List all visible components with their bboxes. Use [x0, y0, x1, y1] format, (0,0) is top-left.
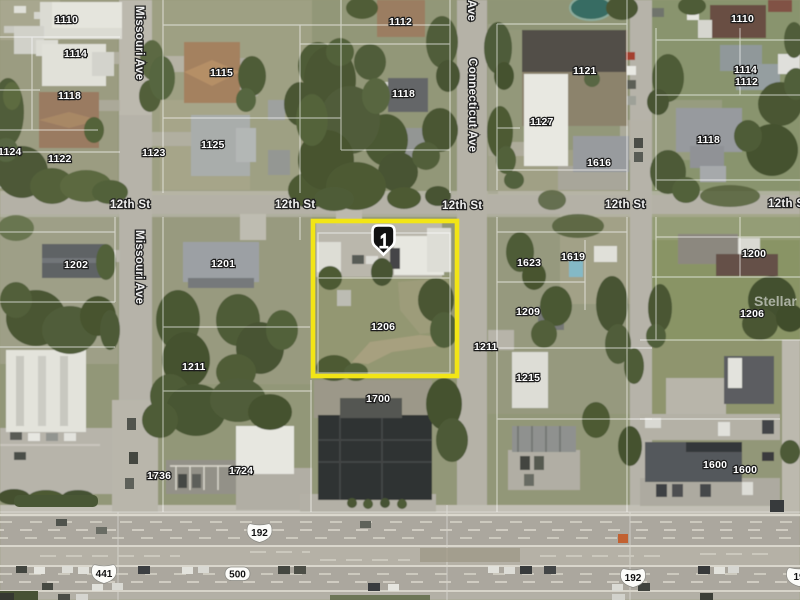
- svg-text:19: 19: [793, 572, 800, 583]
- svg-text:12th St: 12th St: [275, 199, 315, 211]
- svg-text:Connecticut Ave: Connecticut Ave: [466, 58, 478, 152]
- svg-text:1211: 1211: [474, 341, 498, 353]
- svg-text:1211: 1211: [182, 361, 206, 373]
- svg-text:1115: 1115: [210, 67, 233, 79]
- svg-text:1125: 1125: [201, 139, 225, 151]
- svg-text:Connecticut Ave: Connecticut Ave: [465, 0, 477, 21]
- svg-text:1112: 1112: [389, 16, 412, 28]
- svg-text:1110: 1110: [55, 14, 78, 26]
- svg-text:1619: 1619: [561, 251, 585, 263]
- svg-text:Missouri Ave: Missouri Ave: [133, 230, 145, 304]
- svg-text:1600: 1600: [733, 464, 757, 476]
- svg-text:1123: 1123: [142, 147, 166, 159]
- svg-text:12th St: 12th St: [110, 199, 150, 211]
- svg-text:192: 192: [251, 528, 268, 539]
- svg-text:1700: 1700: [366, 393, 390, 405]
- svg-text:1114: 1114: [64, 48, 87, 60]
- svg-text:Missouri Ave: Missouri Ave: [133, 6, 145, 80]
- svg-text:1124: 1124: [0, 146, 22, 158]
- svg-text:1616: 1616: [587, 157, 611, 169]
- svg-text:12th St: 12th St: [768, 198, 800, 210]
- svg-text:1623: 1623: [517, 257, 541, 269]
- svg-text:1118: 1118: [58, 90, 81, 102]
- svg-text:Stellar M: Stellar M: [754, 293, 800, 309]
- svg-text:1202: 1202: [64, 259, 88, 271]
- svg-text:1127: 1127: [530, 116, 554, 128]
- svg-text:1600: 1600: [703, 459, 727, 471]
- svg-text:1201: 1201: [211, 258, 235, 270]
- svg-text:1724: 1724: [229, 465, 253, 477]
- svg-text:1118: 1118: [392, 88, 415, 100]
- svg-text:12th St: 12th St: [442, 200, 482, 212]
- svg-text:1110: 1110: [731, 13, 754, 25]
- svg-text:1736: 1736: [147, 470, 171, 482]
- svg-text:1206: 1206: [371, 321, 395, 333]
- svg-text:192: 192: [625, 573, 642, 584]
- svg-text:1112: 1112: [735, 76, 758, 88]
- svg-text:1209: 1209: [516, 306, 540, 318]
- svg-text:1206: 1206: [740, 308, 764, 320]
- svg-text:1121: 1121: [573, 65, 597, 77]
- svg-text:1118: 1118: [697, 134, 720, 146]
- svg-text:12th St: 12th St: [605, 199, 645, 211]
- svg-text:441: 441: [96, 569, 113, 580]
- svg-text:1215: 1215: [516, 372, 540, 384]
- svg-text:500: 500: [229, 570, 246, 581]
- svg-text:1122: 1122: [48, 153, 72, 165]
- svg-text:1200: 1200: [742, 248, 766, 260]
- svg-text:1114: 1114: [734, 64, 757, 76]
